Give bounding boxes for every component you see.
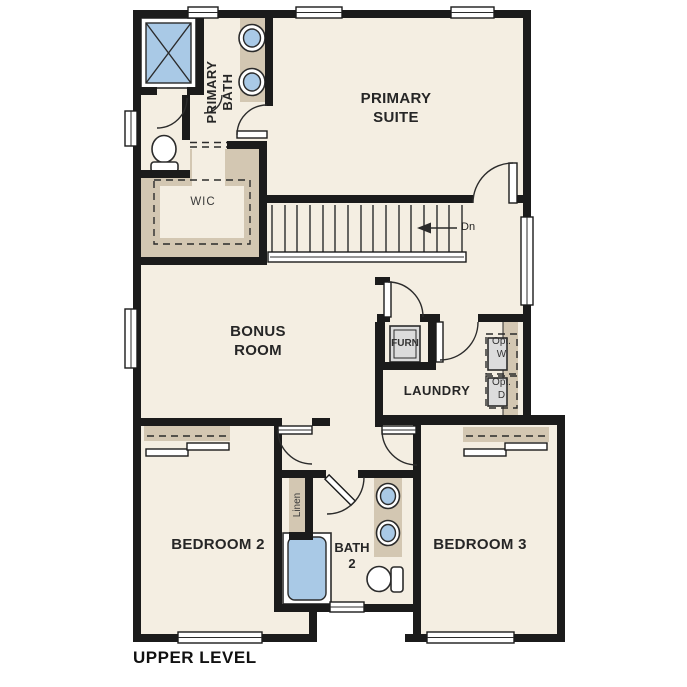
bedroom2-closet-sliding-door [187,443,229,450]
primary-toilet-bowl [152,136,176,163]
room-label-line: BONUS [198,323,318,342]
wall-segment [428,314,436,370]
wall-segment [259,141,267,265]
wall-segment [478,314,523,322]
bath2-sink-2-basin [381,525,396,542]
wall-segment [133,257,267,265]
wall-segment [413,418,421,642]
label-line: Opt. [486,335,517,348]
bath2-toilet-tank [391,567,403,592]
bedroom3-closet-sliding-door [505,443,547,450]
wall-segment [141,87,157,95]
room-label-primary-bath: PRIMARY BATH [178,52,262,132]
room-label-line: PRIMARY [336,90,456,109]
room-label-bonus-room: BONUS ROOM [198,323,318,361]
primary-bath-door-leaf [237,131,267,138]
wall-segment [358,470,421,478]
wall-segment [375,322,383,427]
room-label-wic: WIC [182,195,224,209]
bedroom2-closet [144,426,230,441]
floor-plan: PRIMARY BATH PRIMARY SUITE WIC Dn BONUS … [0,0,687,687]
bedroom2-closet-sliding-door [146,449,188,456]
bathtub [288,537,326,600]
wall-segment [421,314,440,322]
furnace-door-leaf [384,282,391,317]
wall-segment [557,415,565,642]
label-line: W [486,348,517,361]
room-label-bath2: BATH 2 [322,540,382,571]
wall-segment [377,362,436,370]
room-label-line: ROOM [198,342,318,361]
wall-segment [267,195,473,203]
room-label-line: SUITE [336,109,456,128]
room-label-bedroom3: BEDROOM 3 [410,536,550,555]
primary-sink-1-basin [244,29,261,47]
label-optional-washer: Opt. W [486,335,517,361]
wall-segment [421,415,565,425]
bedroom3-closet [463,427,549,442]
room-label-line: 2 [322,556,382,572]
wall-segment [265,10,273,106]
primary-suite-door-leaf [509,163,517,203]
label-line: Opt. [486,376,517,389]
bedroom3-closet-sliding-door [464,449,506,456]
label-optional-dryer: Opt. D [486,376,517,402]
wic-floor [160,186,244,238]
bath2-sink-1-basin [381,488,396,505]
room-label-line: PRIMARY [204,61,220,124]
wall-segment [309,604,317,642]
plan-title: UPPER LEVEL [133,647,333,668]
room-label-laundry: LAUNDRY [397,383,477,399]
room-label-primary-suite: PRIMARY SUITE [336,90,456,128]
room-label-bedroom2: BEDROOM 2 [148,536,288,555]
stairs-direction-label: Dn [461,221,487,235]
wic-entry-floor [192,149,225,189]
wall-segment [133,418,278,426]
room-label-linen: Linen [268,475,328,535]
room-label-furnace: FURN [384,338,426,351]
laundry-door-leaf [436,322,443,362]
wall-segment [133,170,190,178]
label-line: D [486,389,517,402]
room-label-line: BATH [322,540,382,556]
wall-segment [312,418,330,426]
room-label-line: BATH [220,73,236,110]
